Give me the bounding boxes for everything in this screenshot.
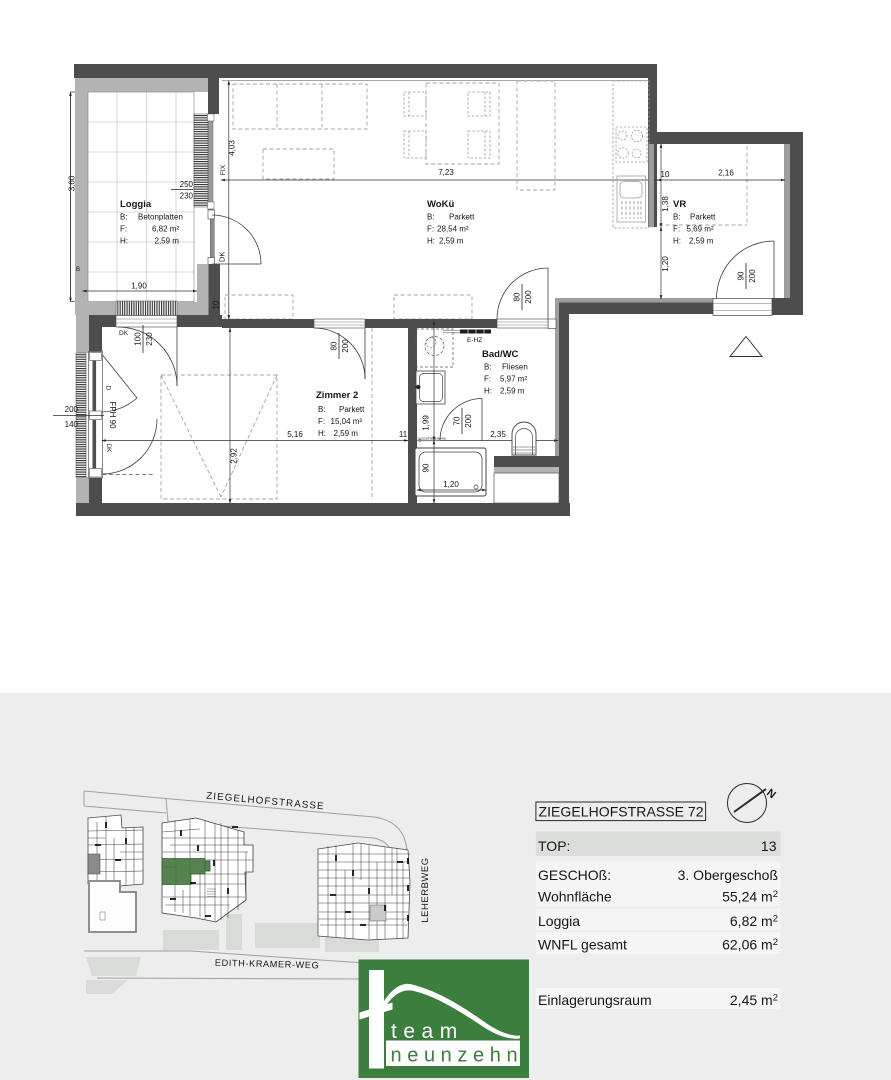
- svg-text:VR: VR: [673, 199, 686, 210]
- svg-text:B: B: [76, 267, 80, 273]
- svg-text:200: 200: [748, 269, 757, 283]
- svg-text:28,54 m²: 28,54 m²: [437, 225, 469, 234]
- svg-text:E-HZ: E-HZ: [467, 337, 482, 344]
- svg-text:2,59 m: 2,59 m: [155, 237, 180, 246]
- svg-text:200: 200: [464, 414, 473, 428]
- svg-text:Betonplatten: Betonplatten: [138, 213, 183, 222]
- svg-text:80: 80: [330, 341, 339, 350]
- svg-text:Bad/WC: Bad/WC: [482, 349, 519, 360]
- svg-text:6,82 m²: 6,82 m²: [152, 225, 179, 234]
- svg-text:FIX: FIX: [220, 164, 227, 175]
- svg-text:2,59 m: 2,59 m: [334, 429, 359, 438]
- svg-text:Zimmer 2: Zimmer 2: [316, 390, 358, 401]
- svg-text:2,35: 2,35: [490, 430, 506, 439]
- svg-text:2,59 m: 2,59 m: [500, 387, 525, 396]
- svg-text:1,90: 1,90: [131, 282, 147, 291]
- svg-text:D: D: [105, 386, 112, 391]
- svg-text:1,20: 1,20: [661, 256, 670, 272]
- svg-text:90: 90: [737, 271, 746, 280]
- svg-text:B:: B:: [673, 213, 681, 222]
- svg-text:F:: F:: [484, 375, 491, 384]
- svg-text:H:: H:: [484, 387, 492, 396]
- svg-text:2,45 m2: 2,45 m2: [730, 992, 778, 1008]
- svg-text:Parkett: Parkett: [449, 213, 475, 222]
- svg-text:10: 10: [661, 170, 670, 179]
- svg-text:DK: DK: [218, 252, 227, 262]
- svg-text:WNFL gesamt: WNFL gesamt: [538, 937, 627, 953]
- svg-text:230: 230: [145, 332, 154, 346]
- svg-text:F:: F:: [673, 225, 680, 234]
- svg-text:55,24 m2: 55,24 m2: [722, 889, 778, 905]
- svg-text:B:: B:: [427, 213, 435, 222]
- svg-text:F:: F:: [427, 225, 434, 234]
- svg-text:H:: H:: [318, 429, 326, 438]
- svg-text:6,82 m2: 6,82 m2: [730, 913, 778, 929]
- svg-text:LEHERBWEG: LEHERBWEG: [420, 857, 431, 922]
- svg-text:62,06 m2: 62,06 m2: [722, 937, 778, 953]
- svg-text:Fliesen: Fliesen: [502, 363, 528, 372]
- svg-text:70: 70: [453, 416, 462, 425]
- svg-text:WoKü: WoKü: [427, 199, 454, 210]
- svg-text:DUSCHTRENNWAND: DUSCHTRENNWAND: [418, 437, 446, 441]
- svg-text:3. Obergeschoß: 3. Obergeschoß: [678, 867, 778, 883]
- svg-text:neunzehn: neunzehn: [391, 1045, 524, 1067]
- svg-text:B:: B:: [484, 363, 492, 372]
- svg-text:140: 140: [65, 420, 79, 429]
- svg-text:GESCHOß:: GESCHOß:: [538, 867, 611, 883]
- svg-text:Wohnfläche: Wohnfläche: [538, 889, 612, 905]
- svg-text:5,97 m²: 5,97 m²: [500, 375, 527, 384]
- svg-text:4,03: 4,03: [228, 140, 237, 156]
- svg-text:B:: B:: [318, 405, 326, 414]
- svg-text:Loggia: Loggia: [120, 199, 152, 210]
- svg-text:1,38: 1,38: [661, 196, 670, 212]
- svg-text:2,59 m: 2,59 m: [689, 237, 714, 246]
- svg-text:2,16: 2,16: [718, 169, 734, 178]
- svg-text:2,92: 2,92: [230, 448, 239, 464]
- svg-text:250: 250: [180, 180, 194, 189]
- svg-text:3,60: 3,60: [68, 175, 77, 191]
- svg-text:B:: B:: [120, 213, 128, 222]
- svg-text:Loggia: Loggia: [538, 913, 580, 929]
- svg-text:team: team: [391, 1020, 464, 1043]
- svg-text:200: 200: [65, 405, 79, 414]
- svg-text:DK: DK: [119, 330, 129, 337]
- svg-text:1,20: 1,20: [443, 480, 459, 489]
- svg-text:H:: H:: [427, 237, 435, 246]
- svg-text:13: 13: [761, 838, 777, 854]
- svg-text:15,04 m²: 15,04 m²: [331, 417, 363, 426]
- svg-text:230: 230: [180, 192, 194, 201]
- svg-text:FPH 90: FPH 90: [108, 401, 117, 429]
- svg-text:F:: F:: [318, 417, 325, 426]
- svg-text:200: 200: [524, 290, 533, 304]
- svg-text:H:: H:: [120, 237, 128, 246]
- svg-text:5,16: 5,16: [287, 430, 303, 439]
- svg-text:7,23: 7,23: [438, 168, 454, 177]
- svg-text:DK: DK: [105, 444, 111, 452]
- svg-text:5,69 m²: 5,69 m²: [687, 225, 714, 234]
- svg-text:Parkett: Parkett: [339, 405, 365, 414]
- svg-text:2,59 m: 2,59 m: [439, 237, 464, 246]
- svg-text:90: 90: [422, 463, 431, 472]
- svg-text:80: 80: [513, 292, 522, 301]
- svg-text:10: 10: [212, 300, 221, 309]
- svg-text:H:: H:: [673, 237, 681, 246]
- svg-text:Einlagerungsraum: Einlagerungsraum: [538, 992, 652, 1008]
- svg-text:11: 11: [399, 430, 408, 439]
- svg-text:ZIEGELHOFSTRASSE 72: ZIEGELHOFSTRASSE 72: [539, 804, 704, 820]
- svg-text:1,99: 1,99: [422, 415, 431, 431]
- svg-text:200: 200: [341, 339, 350, 353]
- svg-text:TOP:: TOP:: [538, 838, 570, 854]
- svg-text:F:: F:: [120, 225, 127, 234]
- svg-text:100: 100: [134, 332, 143, 346]
- svg-text:Parkett: Parkett: [690, 213, 716, 222]
